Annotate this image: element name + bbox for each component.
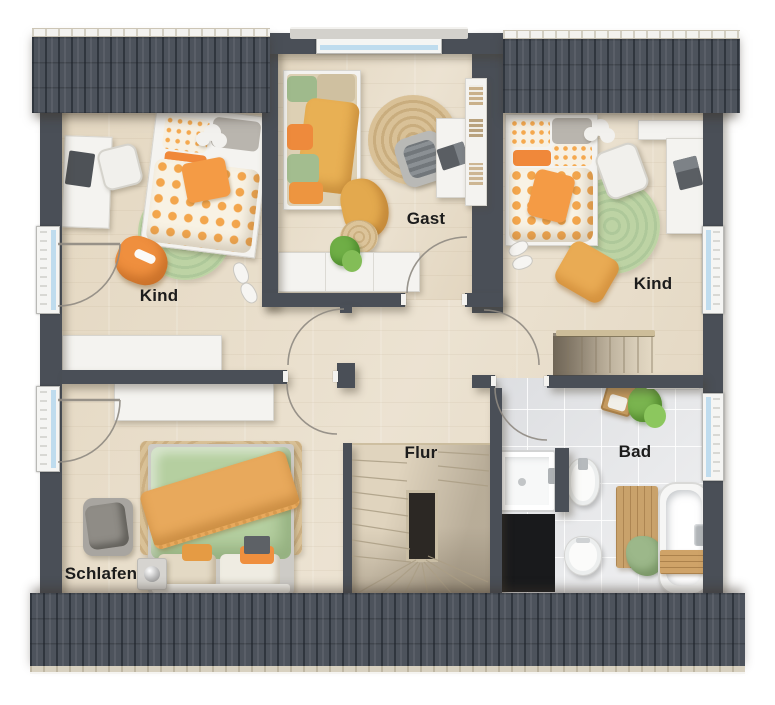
roof-tiles <box>503 39 740 113</box>
wall-right-outer <box>703 95 723 595</box>
plant <box>628 384 668 430</box>
wall-stub <box>340 305 352 313</box>
room-label-bad: Bad <box>619 442 652 462</box>
roof-gutter <box>32 28 270 37</box>
window-hatch <box>40 391 47 467</box>
door-jamb <box>283 371 288 382</box>
wall-left-outer <box>40 95 62 595</box>
stair-flight-straight <box>553 333 655 376</box>
wall-stair-west <box>343 443 352 595</box>
floorplan-canvas: Kind Gast Kind Flur Schlafen Bad <box>0 0 775 705</box>
tub-caddy <box>660 550 708 574</box>
room-label-kind-1: Kind <box>140 286 179 306</box>
window-glass <box>51 390 56 468</box>
window-hatch <box>713 398 720 476</box>
bed-tray <box>244 536 270 554</box>
toilet-button <box>576 538 590 543</box>
bidet-tap <box>578 458 588 470</box>
pillow <box>317 74 355 102</box>
blanket-fold <box>181 156 232 204</box>
window-hatch <box>40 231 47 309</box>
wall-bath-north-b <box>547 375 703 388</box>
table-lamp <box>144 566 160 582</box>
chair-blanket <box>84 501 130 550</box>
monitor <box>65 150 95 187</box>
wall-bath-west <box>490 388 502 595</box>
room-label-gast: Gast <box>407 209 446 229</box>
pillow <box>182 544 212 561</box>
window-right-1 <box>702 226 724 314</box>
roof-top-left <box>32 28 270 113</box>
pillow <box>287 124 313 150</box>
plant <box>328 234 364 276</box>
armchair <box>83 498 133 556</box>
pillow <box>510 119 550 147</box>
books <box>469 85 483 105</box>
wall-bedroom-north <box>62 370 287 384</box>
roof-tiles <box>32 37 270 113</box>
window-glass <box>706 397 711 477</box>
cloud-lobe <box>212 133 227 148</box>
door-jamb <box>462 294 467 305</box>
roof-gutter <box>503 30 740 39</box>
blanket-fold <box>152 584 290 593</box>
sideboard <box>114 381 274 421</box>
shower-drain <box>518 478 526 486</box>
room-label-kind-2: Kind <box>634 274 673 294</box>
window-glass <box>706 230 711 310</box>
sideboard <box>62 335 222 374</box>
double-bed <box>148 444 294 594</box>
roof-top-right <box>503 30 740 113</box>
wall-guest-south-b <box>465 293 503 307</box>
roof-bottom <box>30 593 745 674</box>
cloud-lobe <box>600 128 615 143</box>
stairwell-void <box>406 490 438 562</box>
wall-door-block <box>337 363 355 388</box>
wall-shelf <box>465 78 487 206</box>
room-label-schlafen: Schlafen <box>65 564 137 584</box>
stair-shaft-void <box>500 514 555 592</box>
cloud-side-table <box>584 119 616 147</box>
books <box>469 119 483 137</box>
door-jamb <box>491 376 496 386</box>
door-jamb <box>401 294 406 305</box>
window-glass <box>51 230 56 310</box>
wall-shower-partition <box>555 448 569 512</box>
roof-tiles <box>30 593 745 666</box>
books <box>469 163 483 185</box>
window-glass <box>320 45 438 50</box>
pillow <box>513 150 551 166</box>
window-hatch <box>713 231 720 309</box>
roof-dormer-cap <box>290 27 468 39</box>
door-jamb <box>333 371 338 382</box>
pillow <box>552 144 592 166</box>
roof-gutter <box>30 666 745 674</box>
leaves <box>342 250 362 272</box>
stool-towel <box>607 394 628 412</box>
window-left-1 <box>36 226 60 314</box>
window-left-2 <box>36 386 60 472</box>
room-label-flur: Flur <box>405 443 438 463</box>
wall-guest-south-a <box>262 293 405 307</box>
leaves <box>644 404 666 428</box>
pillow <box>287 154 319 184</box>
window-right-2 <box>702 393 724 481</box>
cloud-side-table <box>196 124 228 152</box>
door-jamb <box>544 376 549 386</box>
stair-handrail <box>556 330 655 337</box>
desk <box>638 120 710 140</box>
pillow <box>289 182 323 204</box>
